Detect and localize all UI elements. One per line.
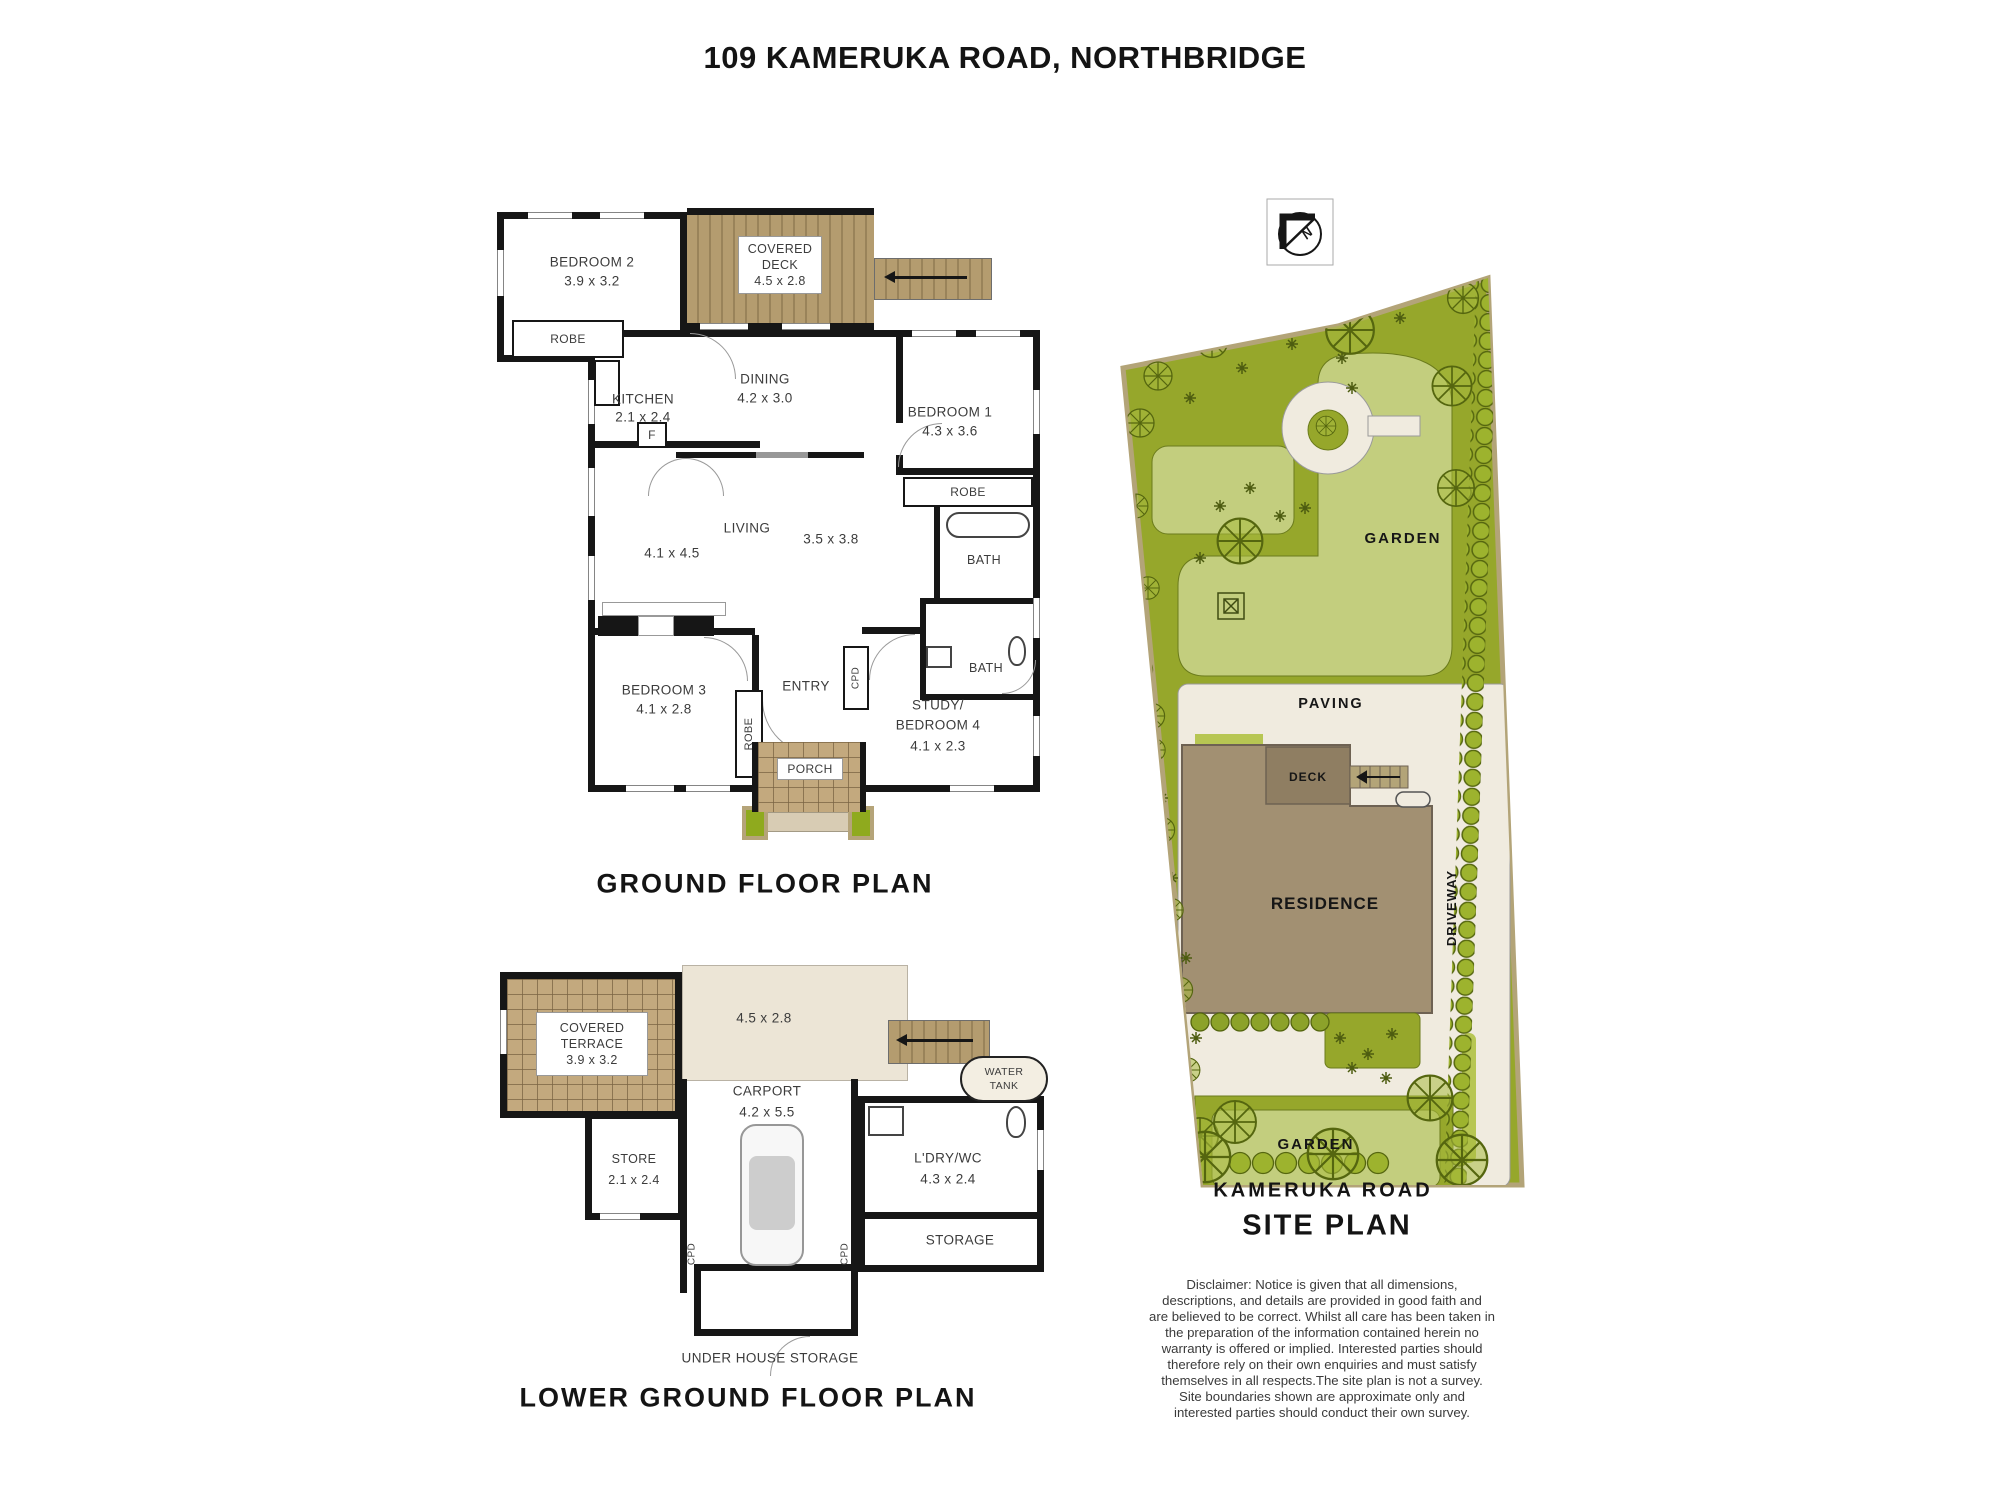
cpd-label: CPD xyxy=(851,667,862,689)
tank-oval xyxy=(1396,792,1430,807)
room-label: CARPORT xyxy=(733,1084,802,1099)
fireplace-hearth xyxy=(602,602,726,616)
toilet-icon xyxy=(1006,1106,1026,1138)
window-marker xyxy=(912,330,956,337)
garden-strip xyxy=(1195,734,1263,745)
disclaimer-line: Site boundaries shown are approximate on… xyxy=(1179,1389,1465,1404)
window-marker xyxy=(700,323,748,330)
stairs-arrow-icon xyxy=(884,271,895,283)
robe-label: ROBE xyxy=(743,718,755,751)
window-marker xyxy=(1033,716,1040,756)
room-label: BEDROOM 4 xyxy=(896,718,981,733)
fridge-box: F xyxy=(637,422,667,448)
cpd-label: CPD xyxy=(687,1243,698,1265)
room-dims: 4.1 x 4.5 xyxy=(644,546,699,561)
room-dims: 4.2 x 3.0 xyxy=(737,391,792,406)
room-dims: 4.5 x 2.8 xyxy=(736,1011,791,1026)
window-marker xyxy=(588,556,595,600)
wall-segment xyxy=(862,627,920,634)
wall-segment xyxy=(595,441,760,448)
lower-ground-floor-title: LOWER GROUND FLOOR PLAN xyxy=(520,1383,977,1414)
cpd-label: CPD xyxy=(840,1243,851,1265)
room-dims: 4.1 x 2.8 xyxy=(636,702,691,717)
room-label: LIVING xyxy=(724,521,771,536)
site-plan-title: SITE PLAN xyxy=(1242,1210,1411,1243)
window-marker xyxy=(976,330,1020,337)
bath-label: BATH xyxy=(969,661,1003,675)
room-dims: 4.3 x 3.6 xyxy=(922,424,977,439)
garden-label: GARDEN xyxy=(1364,530,1441,547)
toilet-icon xyxy=(1008,636,1026,666)
room-dims: 4.3 x 2.4 xyxy=(920,1172,975,1187)
bath-label: BATH xyxy=(967,553,1001,567)
room-dims: 4.1 x 2.3 xyxy=(910,739,965,754)
disclaimer-line: are believed to be correct. Whilst all c… xyxy=(1149,1309,1495,1324)
lawn-patch xyxy=(1152,446,1294,534)
window-marker xyxy=(600,1213,640,1220)
room-dims: 3.5 x 3.8 xyxy=(803,532,858,547)
robe-closet: ROBE xyxy=(903,477,1033,507)
porch-steps xyxy=(766,812,852,832)
road-label: KAMERUKA ROAD xyxy=(1213,1180,1432,1203)
stairs-arrow-line xyxy=(895,276,967,279)
room-label: STORAGE xyxy=(926,1233,995,1248)
wall-segment xyxy=(808,452,864,458)
room-label: BEDROOM 3 xyxy=(622,683,707,698)
laundry-tub-icon xyxy=(868,1106,904,1136)
window-marker xyxy=(782,323,830,330)
car-roof xyxy=(749,1156,795,1230)
site-plan: GARDEN PAVING DECK RESIDENCE DRIVEWAY GA… xyxy=(1100,256,1540,1206)
room-label: L'DRY/WC xyxy=(914,1151,982,1166)
paving-label: PAVING xyxy=(1298,696,1363,712)
water-tank-label: WATER xyxy=(985,1066,1024,1078)
room-label: BEDROOM 2 xyxy=(550,255,635,270)
north-arrow-icon: N xyxy=(1266,198,1334,266)
disclaimer-line: the preparation of the information conta… xyxy=(1165,1325,1479,1340)
room-label: ENTRY xyxy=(782,679,830,694)
room-dims: 2.1 x 2.4 xyxy=(615,410,670,425)
water-tank-label: TANK xyxy=(990,1080,1019,1092)
stairs-arrow-line xyxy=(907,1039,973,1042)
room-dims: 3.9 x 3.2 xyxy=(564,274,619,289)
window-marker xyxy=(528,212,572,219)
under-house-storage-label: UNDER HOUSE STORAGE xyxy=(682,1351,859,1366)
disclaimer-line: therefore rely on their own enquiries an… xyxy=(1167,1357,1476,1372)
window-marker xyxy=(626,785,674,792)
driveway-label: DRIVEWAY xyxy=(1444,870,1459,946)
room-label: KITCHEN xyxy=(612,392,674,407)
page-title: 109 KAMERUKA ROAD, NORTHBRIDGE xyxy=(704,40,1307,76)
garden-path-arm xyxy=(1368,416,1420,436)
water-tank xyxy=(960,1056,1048,1102)
window-marker xyxy=(588,468,595,516)
room-dims: 2.1 x 2.4 xyxy=(608,1173,660,1187)
floorplan-page: { "page_title": "109 KAMERUKA ROAD, NORT… xyxy=(0,0,2000,1500)
ground-floor-title: GROUND FLOOR PLAN xyxy=(597,869,934,900)
window-marker xyxy=(497,250,504,296)
robe-closet: ROBE xyxy=(512,320,624,358)
fireplace-icon xyxy=(598,616,638,636)
room-under-house-storage xyxy=(694,1264,858,1336)
garden-label: GARDEN xyxy=(1277,1136,1354,1153)
disclaimer-line: Disclaimer: Notice is given that all dim… xyxy=(1186,1277,1457,1292)
disclaimer-line: interested parties should conduct their … xyxy=(1174,1405,1470,1420)
disclaimer-line: themselves in all respects.The site plan… xyxy=(1161,1373,1483,1388)
robe-label: ROBE xyxy=(550,332,586,346)
deck-label: DECK xyxy=(1289,770,1327,784)
disclaimer-line: warranty is offered or implied. Interest… xyxy=(1162,1341,1483,1356)
window-marker xyxy=(950,785,994,792)
room-label: BEDROOM 1 xyxy=(908,405,993,420)
window-marker xyxy=(500,1010,507,1054)
stairs-arrow-icon xyxy=(896,1034,907,1046)
wall-segment xyxy=(920,598,1040,604)
residence-label: RESIDENCE xyxy=(1271,894,1379,913)
covered-deck-label: COVEREDDECK4.5 x 2.8 xyxy=(738,236,822,294)
room-label: DINING xyxy=(740,372,790,387)
window-marker xyxy=(600,212,644,219)
window-marker xyxy=(686,785,730,792)
window-marker xyxy=(1033,390,1040,434)
wall-segment xyxy=(934,507,940,602)
room-store xyxy=(585,1112,685,1220)
bathtub-icon xyxy=(946,512,1030,538)
wall-segment xyxy=(896,337,903,423)
basin-icon xyxy=(926,646,952,668)
porch-label-box: PORCH xyxy=(777,758,843,780)
open-area xyxy=(682,965,908,1081)
window-marker xyxy=(1033,598,1040,638)
room-label: STUDY/ xyxy=(912,698,964,713)
fireplace-opening xyxy=(638,616,674,636)
wall-segment xyxy=(896,468,1040,475)
window-marker xyxy=(1037,1130,1044,1170)
wall-segment xyxy=(752,635,759,695)
room-label: STORE xyxy=(612,1152,657,1166)
covered-terrace-label: COVEREDTERRACE3.9 x 3.2 xyxy=(536,1012,648,1076)
fireplace-icon xyxy=(674,616,714,636)
room-dims: 4.2 x 5.5 xyxy=(739,1105,794,1120)
half-wall xyxy=(756,452,808,458)
disclaimer-line: descriptions, and details are provided i… xyxy=(1162,1293,1482,1308)
fridge-label: F xyxy=(648,428,656,442)
wall-segment xyxy=(851,1079,858,1293)
